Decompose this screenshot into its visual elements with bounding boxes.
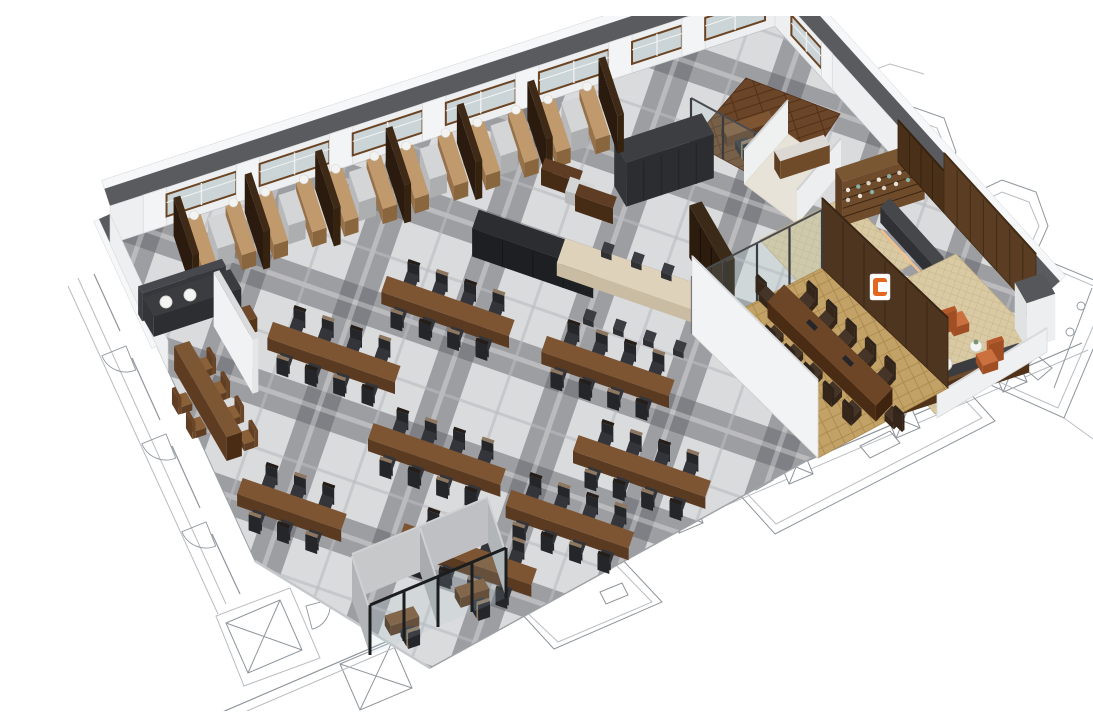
sofa-pillow — [184, 289, 196, 301]
sofa-pillow — [160, 296, 172, 308]
shaft-x — [248, 600, 280, 673]
corridor-wall — [172, 446, 200, 508]
sink-fixture — [1066, 328, 1074, 336]
render-canvas — [40, 16, 1093, 711]
corridor-wall — [212, 534, 240, 594]
rendered-floorplate-layer — [94, 16, 1066, 668]
terrace-detail — [600, 583, 628, 604]
table-plant — [974, 340, 979, 345]
brand-logo-panel — [870, 274, 890, 300]
balcony-detail — [860, 431, 900, 458]
office-floorplan-3d-render — [40, 16, 1093, 711]
corridor-wall — [132, 358, 160, 420]
elevator-shaft — [216, 588, 320, 686]
edge-line — [1064, 418, 1093, 444]
